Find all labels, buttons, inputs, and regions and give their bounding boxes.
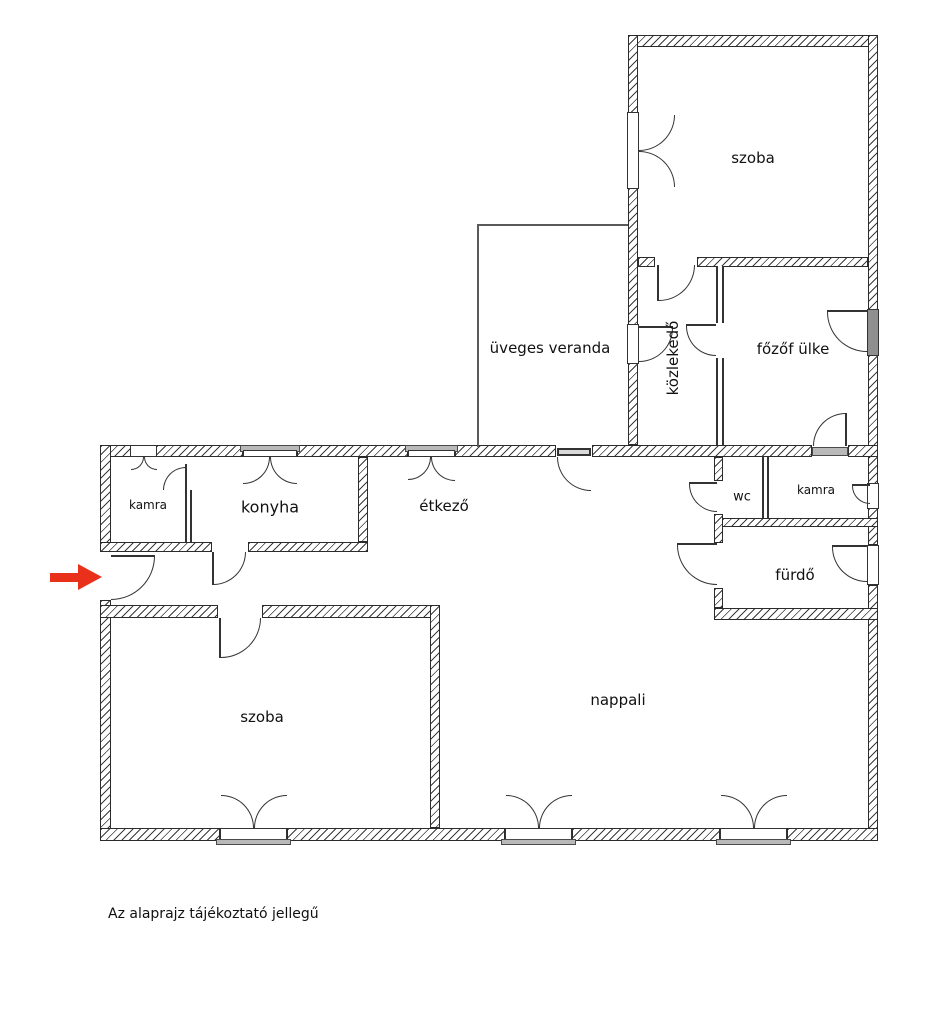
wall-wc-bottom (714, 518, 878, 527)
szoba2-window-arc1 (221, 795, 254, 828)
fozof-door-leaf (845, 413, 847, 446)
furdo-door-leaf (677, 543, 717, 545)
konyha-window-arc1 (243, 457, 270, 484)
disclaimer-text: Az alaprajz tájékoztató jellegű (108, 906, 319, 922)
veranda-left-line (477, 224, 479, 447)
szoba2-window-arc2 (254, 795, 287, 828)
nappali-window2-arc1 (721, 795, 754, 828)
kamra-right-door-arc (852, 486, 870, 504)
kamra-left-door-leaf (185, 464, 187, 491)
wall-right-seg2 (868, 355, 878, 484)
wall-szoba2-top-seg2 (262, 605, 440, 618)
room-label-szoba-top: szoba (731, 149, 775, 167)
wall-konyha-bottom-seg2 (248, 542, 368, 552)
kozlekedo-top-door-arc (659, 265, 695, 301)
kamra-left-window-gap (130, 445, 157, 457)
fozof-west-door-arc (686, 326, 716, 356)
wall-topblock-left-seg1 (628, 35, 638, 113)
wall-right-seg4 (868, 585, 878, 841)
szoba-top-window-arc1 (639, 115, 675, 151)
entrance-arrow-icon (78, 564, 102, 590)
wall-kamra-konyha (185, 490, 192, 542)
room-label-kamra-right: kamra (797, 483, 835, 497)
wall-main-top-seg6 (848, 445, 878, 457)
veranda-door-bar (557, 448, 591, 456)
room-label-etkezo: étkező (419, 497, 469, 515)
nappali-window2-arc2 (754, 795, 787, 828)
fozof-west-door-leaf (686, 324, 716, 326)
kamra-right-door-leaf (852, 484, 870, 486)
room-label-kamra-left: kamra (129, 498, 167, 512)
wall-main-bottom-seg4 (787, 828, 878, 841)
room-label-kozlekedo: közlekedő (664, 321, 682, 396)
fozof-door-arc (813, 413, 846, 446)
nappali-window1-arc2 (539, 795, 572, 828)
konyha-door-arc (213, 552, 246, 585)
room-label-fozofulke: főzőf ülke (757, 340, 830, 358)
wall-main-bottom-seg3 (572, 828, 720, 841)
wall-main-top-seg3 (297, 445, 408, 457)
room-label-veranda: üveges veranda (490, 339, 611, 357)
wall-kozlekedo-fozof-seg2 (716, 358, 724, 445)
entrance-door-leaf (111, 555, 155, 557)
szoba-top-window-frame (627, 112, 639, 189)
wall-main-top-seg5 (592, 445, 812, 457)
kamra-left-window-arc1 (131, 457, 144, 470)
szoba-top-window-arc2 (639, 151, 675, 187)
wall-konyha-bottom-seg1 (100, 542, 212, 552)
veranda-top-line (477, 224, 628, 226)
room-label-szoba-bottom: szoba (240, 708, 284, 726)
wc-door-arc (689, 484, 717, 512)
nappali-window1-sill (501, 839, 576, 845)
furdo-window-arc (832, 547, 867, 582)
room-label-konyha: konyha (241, 498, 299, 517)
kamra-left-door-arc (163, 467, 186, 490)
fozof-window-gap (867, 309, 879, 356)
nappali-window1-arc1 (506, 795, 539, 828)
etkezo-window-arc2 (431, 457, 455, 481)
wall-right-seg1 (868, 35, 878, 310)
konyha-window-arc2 (270, 457, 297, 484)
wall-topblock-left-seg3 (628, 363, 638, 445)
wall-left-seg2 (100, 600, 111, 840)
wall-mid-right-seg1 (714, 457, 723, 481)
furdo-door-arc (677, 545, 717, 585)
wall-mid-right-seg3 (714, 588, 723, 608)
wall-mid-right-seg2 (714, 514, 723, 543)
konyha-window-gap (243, 450, 297, 457)
wall-main-top-seg4 (455, 445, 556, 457)
wall-kozlekedo-fozof-seg1 (716, 266, 724, 323)
nappali-window2-sill (716, 839, 791, 845)
wall-furdo-bottom (714, 608, 878, 620)
etkezo-window-gap (408, 450, 455, 457)
furdo-window-leaf (832, 545, 867, 547)
room-label-furdo: fürdő (775, 566, 814, 584)
konyha-door-leaf (212, 552, 214, 585)
kamra-left-window-arc2 (144, 457, 157, 470)
wall-main-bottom-seg1 (100, 828, 220, 841)
wall-konyha-right (358, 457, 368, 542)
wall-topblock-top (628, 35, 878, 47)
room-label-nappali: nappali (590, 691, 645, 709)
room-label-wc: wc (733, 490, 751, 505)
floor-plan: szoba üveges veranda közlekedő főzőf ülk… (0, 0, 933, 1024)
wall-szoba2-right (430, 605, 440, 828)
wall-topblock-left-seg2 (628, 188, 638, 325)
wall-main-bottom-seg2 (287, 828, 505, 841)
veranda-door-arc (557, 457, 591, 491)
fozof-door-threshold (812, 447, 848, 456)
wall-main-top-seg2 (156, 445, 243, 457)
wall-left-seg1 (100, 445, 111, 551)
kozlekedo-top-door-leaf (657, 265, 659, 301)
szoba2-window-sill (216, 839, 291, 845)
wall-szoba-divider-seg1 (638, 257, 655, 267)
wall-wc-kamra (762, 457, 769, 518)
etkezo-window-arc1 (408, 457, 431, 480)
fozof-window-arc (827, 312, 867, 352)
szoba2-door-arc (221, 618, 261, 658)
fozof-window-leaf (827, 310, 867, 312)
entrance-arrow-shaft (50, 573, 80, 582)
wc-door-leaf (689, 482, 717, 484)
kozlekedo-west-door-frame (627, 324, 639, 364)
wall-szoba2-top-seg1 (100, 605, 218, 618)
furdo-window-gap (867, 545, 879, 585)
szoba2-door-leaf (219, 618, 221, 658)
entrance-door-arc (111, 556, 155, 600)
